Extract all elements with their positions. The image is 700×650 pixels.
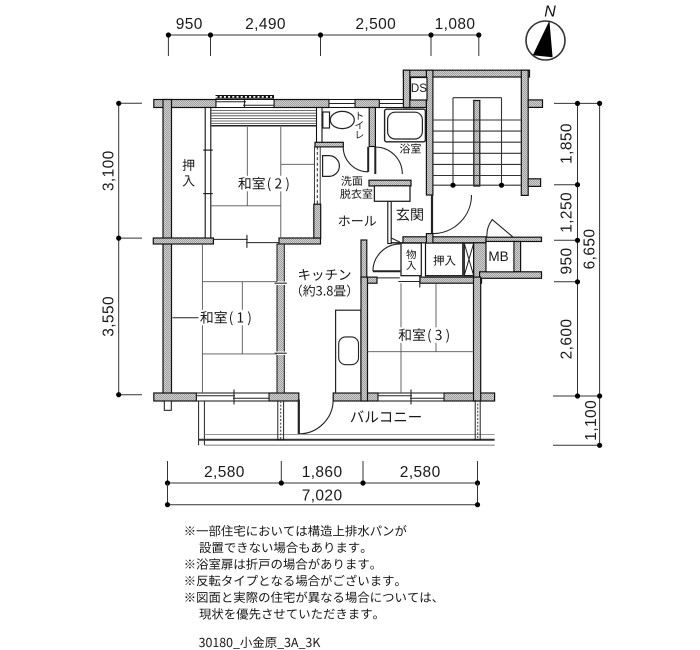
svg-text:1,860: 1,860: [302, 464, 343, 481]
svg-text:3,100: 3,100: [101, 150, 118, 191]
svg-text:2,500: 2,500: [355, 16, 396, 33]
svg-text:7,020: 7,020: [302, 488, 343, 505]
svg-text:950: 950: [559, 247, 576, 274]
svg-text:N: N: [544, 4, 556, 21]
svg-text:1,850: 1,850: [559, 123, 576, 164]
svg-text:6,650: 6,650: [582, 229, 599, 270]
svg-text:MB: MB: [488, 249, 508, 264]
svg-text:2,600: 2,600: [559, 319, 576, 360]
svg-text:2,580: 2,580: [204, 464, 245, 481]
svg-text:2,580: 2,580: [400, 464, 441, 481]
svg-text:1,250: 1,250: [559, 192, 576, 233]
svg-text:3,550: 3,550: [101, 296, 118, 337]
svg-text:DS: DS: [411, 83, 427, 95]
svg-text:1,080: 1,080: [435, 16, 476, 33]
svg-text:1,100: 1,100: [583, 400, 600, 441]
svg-text:2,490: 2,490: [245, 16, 286, 33]
svg-text:950: 950: [176, 16, 203, 33]
